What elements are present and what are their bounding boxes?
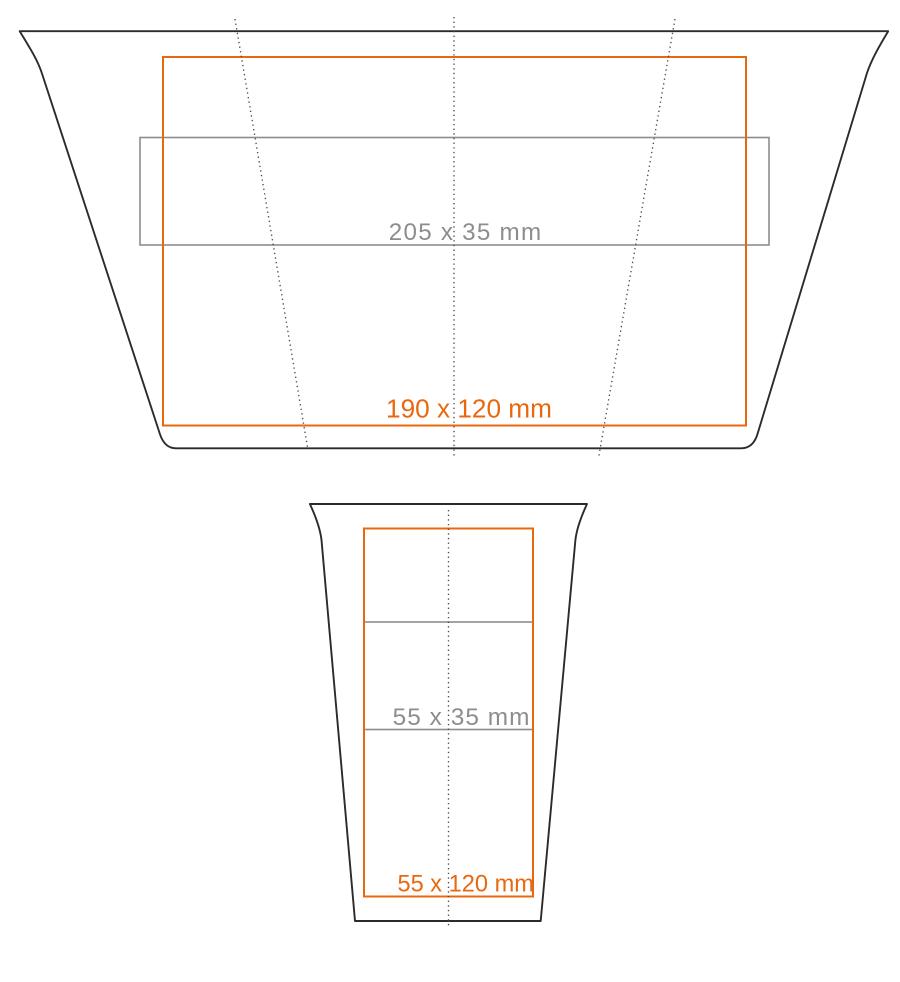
svg-text:205 x 35 mm: 205 x 35 mm (389, 219, 543, 246)
svg-text:55 x 120 mm: 55 x 120 mm (398, 872, 534, 898)
svg-text:190 x 120 mm: 190 x 120 mm (386, 394, 552, 424)
svg-text:55 x 35 mm: 55 x 35 mm (393, 704, 531, 731)
